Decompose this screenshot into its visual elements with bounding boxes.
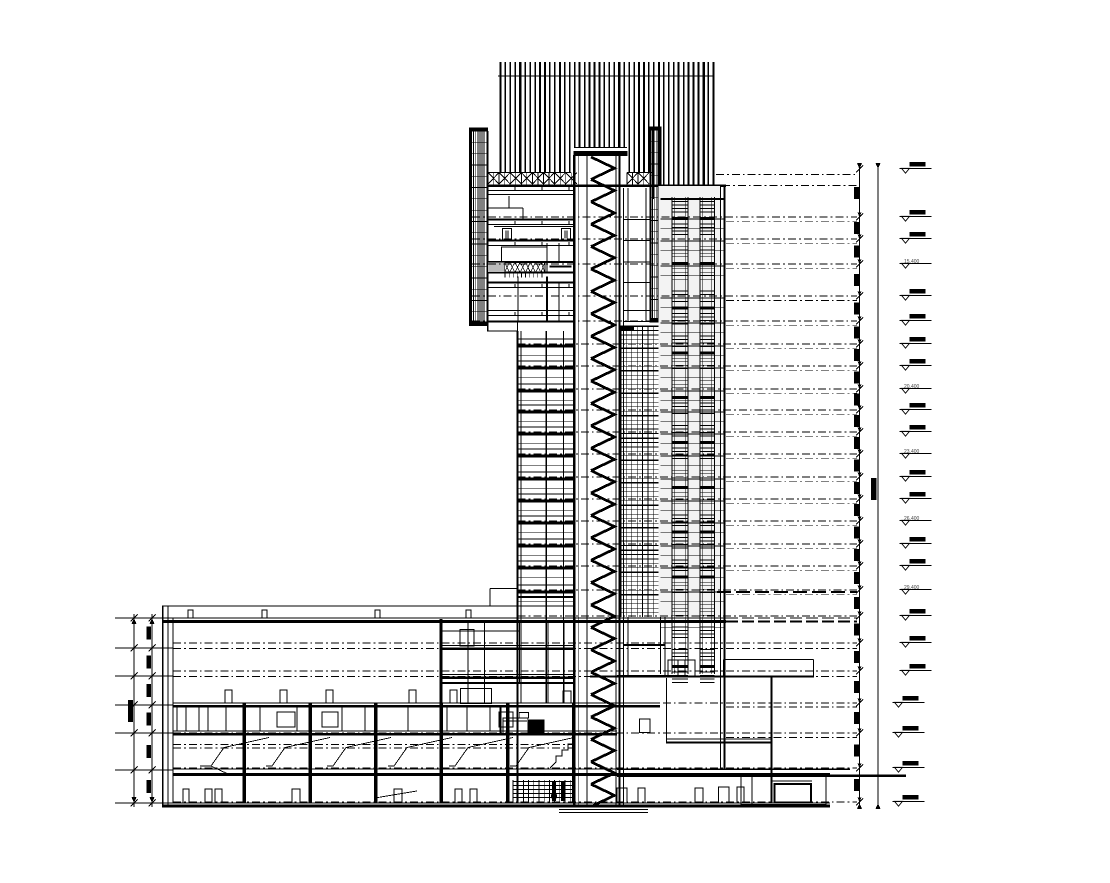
- svg-text:29.400: 29.400: [904, 585, 920, 591]
- svg-text:20.400: 20.400: [904, 384, 920, 390]
- svg-text:15.400: 15.400: [904, 259, 920, 265]
- svg-text:26.400: 26.400: [904, 516, 920, 522]
- svg-text:23.400: 23.400: [904, 449, 920, 455]
